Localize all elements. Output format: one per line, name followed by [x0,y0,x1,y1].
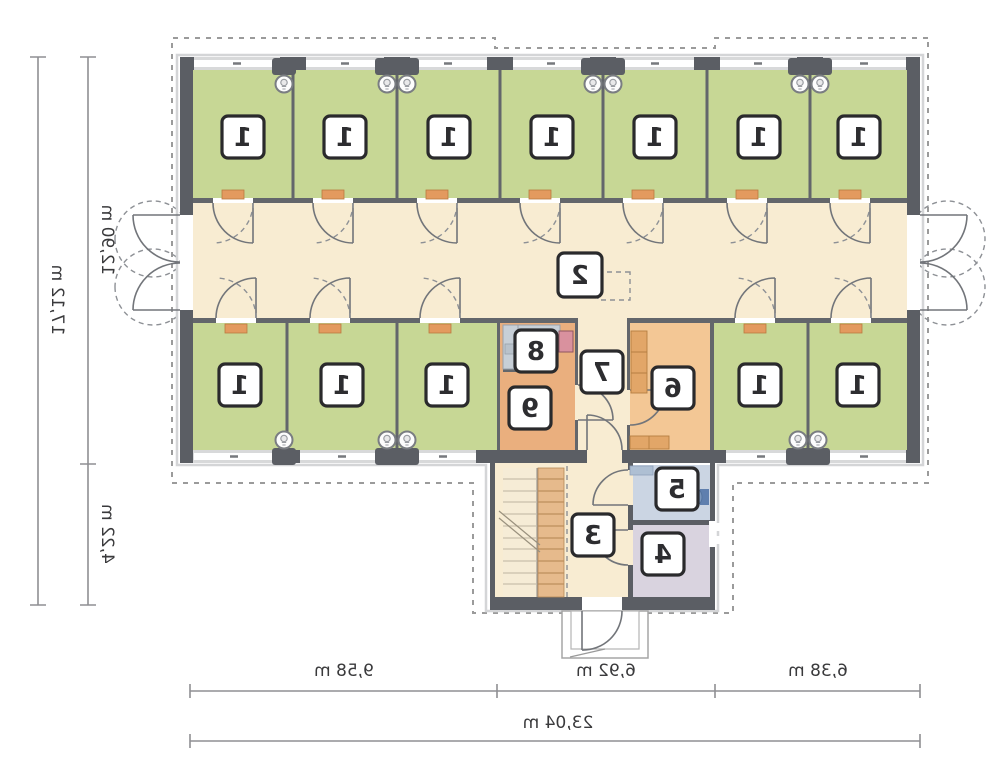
dim-bottom-center-seg: 6,92 m [576,661,636,681]
exterior-door-swing-dashed [115,249,191,325]
floorplan-canvas: 1 [0,0,1000,776]
wall-annex-right [490,450,495,610]
room-3-label: 3 [584,521,602,551]
sink-icon [630,466,653,475]
floorplan-svg: 1 [0,0,1000,776]
corridor-end-door-right [180,215,193,310]
mirrored-plan: 2 3 4 5 6 7 8 9 12,90 m 4,22 m 17,12 m 6… [30,38,985,748]
room-4-label: 4 [654,540,672,570]
room-9-label: 9 [521,394,539,424]
room-6-label: 6 [664,374,682,404]
appliance-icon [559,331,573,352]
entrance-porch [562,611,648,658]
exterior-door-swing-dashed [115,201,191,277]
room-5-label: 5 [668,475,686,505]
corridor-floor [193,203,907,318]
room-7-label: 7 [593,358,611,388]
corridor-end-door-left [907,215,920,310]
side-dimensions: 12,90 m 4,22 m 17,12 m [30,57,117,605]
techroom-window [709,521,716,547]
dim-side-upper: 12,90 m [97,205,117,276]
room-2-label: 2 [571,261,589,291]
entrance-door-gap [582,597,622,610]
dim-side-lower: 4,22 m [97,504,117,564]
staircase [499,466,567,599]
room-8-label: 8 [527,337,545,367]
exterior-door-swing-dashed [909,249,985,325]
exterior-door-swing-dashed [909,201,985,277]
dim-bottom-left-seg: 9,58 m [314,661,374,681]
wall-bath-tech [633,520,710,525]
dim-bottom-total: 23,04 m [523,713,594,733]
bottom-dimensions: 6,38 m 6,92 m 9,58 m 23,04 m [190,661,920,748]
dim-side-total: 17,12 m [47,265,67,336]
dim-bottom-right-seg: 6,38 m [788,661,848,681]
